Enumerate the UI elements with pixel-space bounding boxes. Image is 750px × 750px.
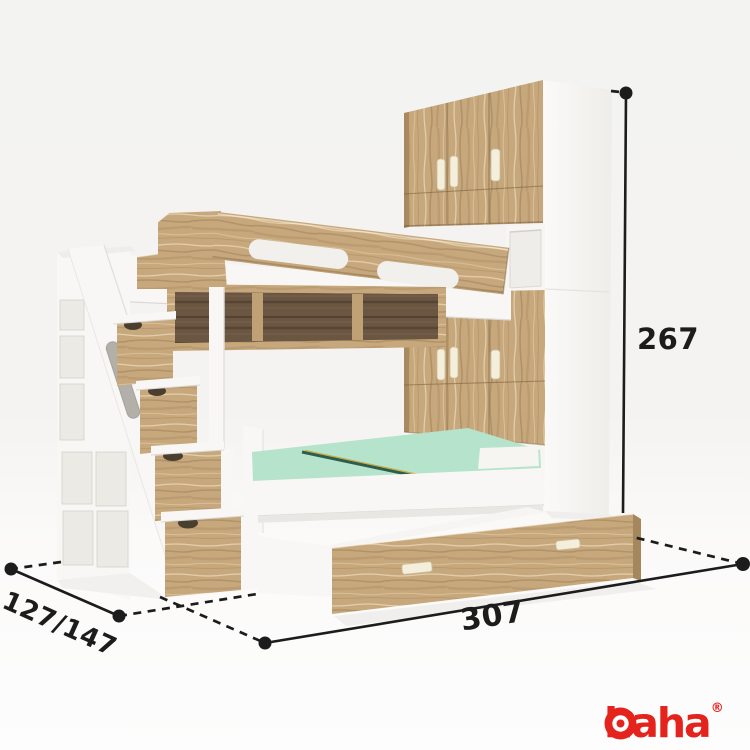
dimension-height-label: 267 bbox=[637, 322, 699, 356]
trundle-drawer bbox=[256, 507, 656, 626]
stair-step-drawer-4 bbox=[161, 507, 258, 597]
stair-step-drawer-2 bbox=[136, 376, 200, 454]
wardrobe-open-shelf bbox=[506, 224, 545, 293]
under-bed-wall-shelf bbox=[167, 284, 446, 351]
pillow bbox=[478, 446, 539, 469]
wardrobe-upper-cabinet bbox=[404, 80, 543, 228]
dimension-height-line bbox=[611, 87, 633, 514]
ohaha-o-icon bbox=[604, 707, 637, 740]
registered-trademark-icon: ® bbox=[711, 701, 724, 716]
stair-step-drawer-1 bbox=[113, 311, 176, 386]
product-dimension-diagram: 267 307 127/147 haha ® bbox=[0, 0, 750, 750]
brand-logo: haha ® bbox=[604, 707, 723, 740]
